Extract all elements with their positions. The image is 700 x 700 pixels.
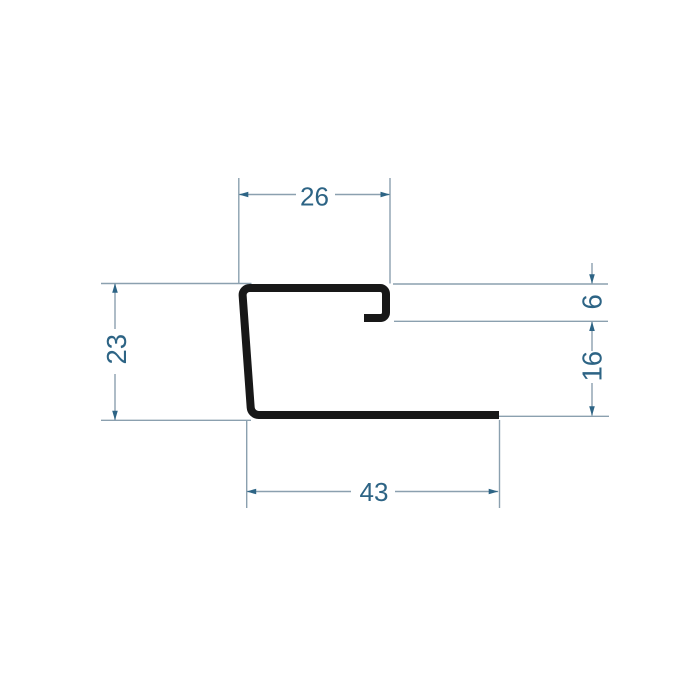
svg-text:6: 6	[576, 294, 607, 309]
svg-text:43: 43	[360, 477, 389, 507]
svg-text:16: 16	[576, 351, 607, 382]
svg-text:23: 23	[101, 334, 132, 365]
svg-text:26: 26	[300, 182, 329, 212]
